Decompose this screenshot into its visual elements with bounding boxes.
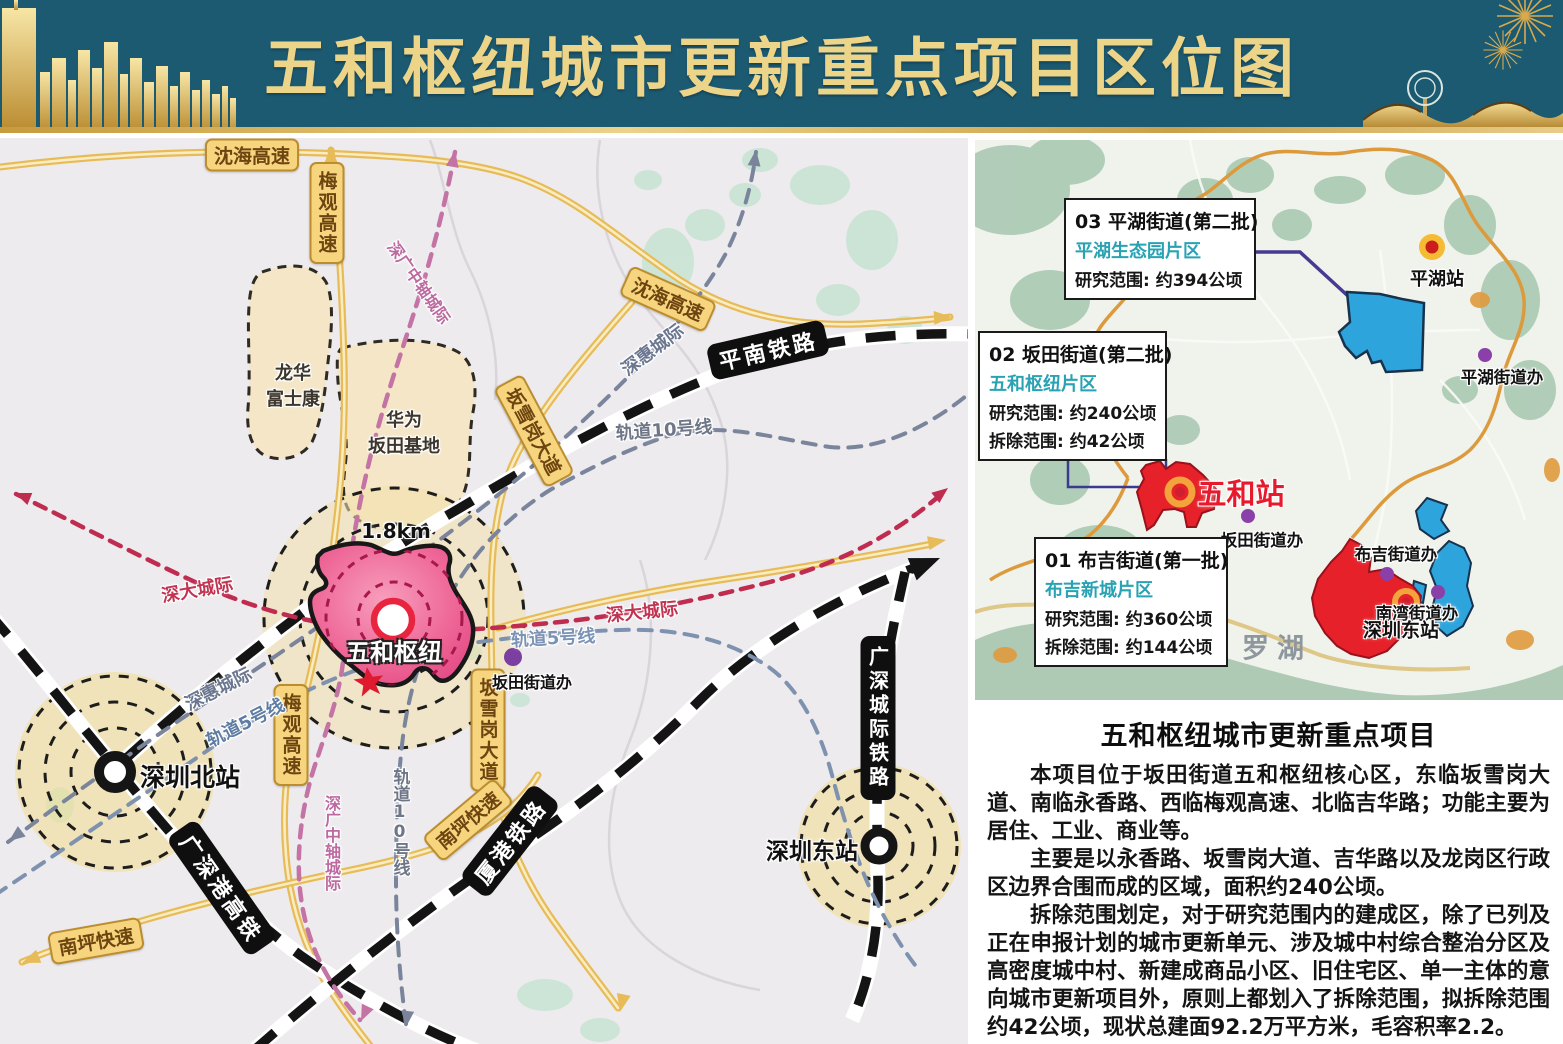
- rail-badge-guangshen-intercity: 广深城际铁路: [861, 636, 896, 800]
- callout-01-line1: 研究范围: 约360公顷: [1045, 605, 1217, 630]
- label-luohu: 罗湖: [1242, 627, 1312, 666]
- line-label-metro10-2: 轨道10号线: [388, 768, 413, 876]
- callout-03-title: 03 平湖街道(第二批): [1075, 207, 1245, 234]
- station-label-wuhe-hub: 五和枢纽: [346, 633, 442, 668]
- callout-01-subtitle: 布吉新城片区: [1045, 576, 1217, 602]
- callout-03-pinghu: 03 平湖街道(第二批) 平湖生态园片区 研究范围: 约394公顷: [1064, 198, 1256, 300]
- callout-02-title: 02 坂田街道(第二批): [989, 340, 1156, 367]
- banner-gold-divider: [0, 127, 1563, 133]
- gold-mountains-graphic: [1363, 0, 1563, 133]
- info-title: 五和枢纽城市更新重点项目: [987, 714, 1550, 753]
- callout-01-line2: 拆除范围: 约144公顷: [1045, 633, 1217, 658]
- shenzhen-north-station-icon: [99, 756, 131, 788]
- firework-icon: [1483, 0, 1553, 70]
- line-label-central-axis-2: 深广中轴城际: [319, 795, 343, 891]
- info-paragraph-1: 本项目位于坂田街道五和枢纽核心区，东临坂雪岗大道、南临永香路、西临梅观高速、北临…: [987, 762, 1550, 846]
- label-bantian-office: 坂田街道办: [492, 669, 572, 693]
- callout-02-bantian: 02 坂田街道(第二批) 五和枢纽片区 研究范围: 约240公顷 拆除范围: 约…: [978, 331, 1167, 461]
- area-label-huawei-base: 华为 坂田基地: [368, 406, 440, 458]
- station-label-shenzhen-north: 深圳北站: [140, 758, 240, 794]
- road-badge-shenhai-1: 沈海高速: [205, 139, 299, 172]
- info-paragraph-3: 拆除范围划定，对于研究范围内的建成区，除了已列及正在申报计划的城市更新单元、涉及…: [987, 902, 1550, 1042]
- label-bantian-office-inset: 坂田街道办: [1221, 527, 1304, 551]
- label-pinghu-office: 平湖街道办: [1461, 364, 1544, 388]
- schematic-map: 沈海高速 沈海高速 梅观高速 梅观高速 坂雪岗大道 坂雪岗大道 南坪快速 南坪快…: [0, 138, 968, 1044]
- title-banner: 五和枢纽城市更新重点项目区位图: [0, 0, 1563, 133]
- label-wuhe-station: 五和站: [1197, 471, 1284, 513]
- scale-label-1-8km: 1.8km: [361, 519, 431, 543]
- callout-01-title: 01 布吉街道(第一批): [1045, 546, 1217, 573]
- schematic-map-svg: [0, 138, 968, 1044]
- shenzhen-east-station-icon: [865, 832, 893, 860]
- callout-01-buji: 01 布吉街道(第一批) 布吉新城片区 研究范围: 约360公顷 拆除范围: 约…: [1034, 537, 1228, 667]
- callout-03-subtitle: 平湖生态园片区: [1075, 237, 1245, 263]
- road-badge-meiguan-1: 梅观高速: [310, 162, 345, 264]
- callout-02-line1: 研究范围: 约240公顷: [989, 399, 1156, 424]
- page-title: 五和枢纽城市更新重点项目区位图: [0, 17, 1563, 109]
- station-label-shenzhen-east: 深圳东站: [766, 832, 858, 866]
- callout-02-line2: 拆除范围: 约42公顷: [989, 427, 1156, 452]
- label-shenzhen-east-inset: 深圳东站: [1363, 616, 1439, 643]
- callout-03-line1: 研究范围: 约394公顷: [1075, 266, 1245, 291]
- label-pinghu-station: 平湖站: [1410, 265, 1464, 291]
- callout-02-subtitle: 五和枢纽片区: [989, 370, 1156, 396]
- project-info-panel: 五和枢纽城市更新重点项目 本项目位于坂田街道五和枢纽核心区，东临坂雪岗大道、南临…: [975, 700, 1563, 1044]
- info-paragraph-2: 主要是以永香路、坂雪岗大道、吉华路以及龙岗区行政区边界合围而成的区域，面积约24…: [987, 846, 1550, 902]
- inset-map: 平湖站 平湖街道办 五和站 坂田街道办 布吉街道办 南湾街道办 深圳东站 罗湖 …: [975, 140, 1563, 700]
- label-buji-office: 布吉街道办: [1355, 541, 1438, 565]
- pinghu-station-dot-icon: [1419, 234, 1445, 260]
- area-label-longhua-foxconn: 龙华 富士康: [266, 359, 320, 411]
- line-label-metro5-2: 轨道5号线: [510, 622, 596, 652]
